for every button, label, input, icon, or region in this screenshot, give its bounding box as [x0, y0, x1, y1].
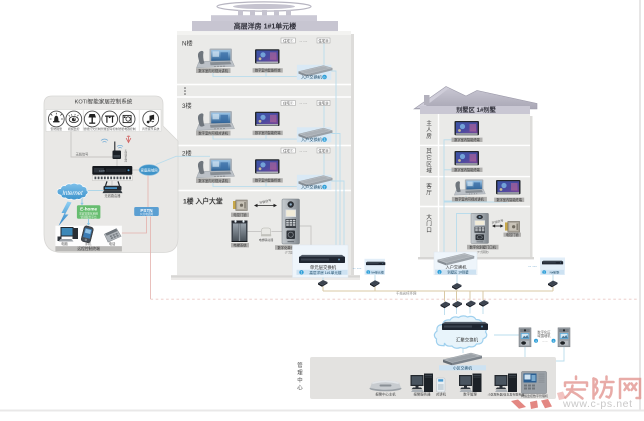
svg-text:-- ---: -- --- [299, 100, 307, 105]
svg-text:Internet: Internet [62, 191, 83, 197]
svg-text:管: 管 [297, 361, 303, 369]
svg-text:E-home: E-home [80, 207, 97, 212]
svg-text:数字室内智能终端: 数字室内智能终端 [454, 167, 480, 172]
svg-text:数字室内智能终端: 数字室内智能终端 [496, 197, 522, 202]
svg-text:高层洋房 1#1单元楼: 高层洋房 1#1单元楼 [309, 270, 342, 275]
svg-text:电脑: 电脑 [61, 241, 68, 246]
svg-text:大: 大 [426, 213, 432, 221]
svg-text:2: 2 [324, 186, 326, 190]
svg-text:智能灯光控制: 智能灯光控制 [84, 126, 101, 131]
svg-text:千兆光纤环网: 千兆光纤环网 [396, 291, 417, 296]
svg-text:背景音乐系统: 背景音乐系统 [142, 126, 159, 131]
svg-text:数字化别墅门口机: 数字化别墅门口机 [470, 244, 497, 249]
svg-text:n: n [324, 76, 326, 80]
svg-text:小区交换机: 小区交换机 [453, 365, 472, 370]
svg-text:小区服务器/信息发布服务器: 小区服务器/信息发布服务器 [488, 392, 525, 397]
svg-text:家庭智能化系统: 家庭智能化系统 [79, 211, 98, 215]
svg-text:N#别墅: N#别墅 [550, 270, 560, 275]
svg-text:远程控制终端: 远程控制终端 [77, 246, 100, 251]
svg-text:人: 人 [426, 127, 432, 134]
svg-text:智能电器控制: 智能电器控制 [118, 126, 135, 131]
svg-text:无线路由器: 无线路由器 [105, 193, 122, 198]
svg-text:入户交换机: 入户交换机 [301, 136, 323, 143]
svg-text:门: 门 [426, 220, 432, 228]
svg-text:别墅区 1#别墅: 别墅区 1#别墅 [447, 270, 469, 275]
svg-text:理: 理 [297, 370, 303, 377]
svg-text:无线信号: 无线信号 [76, 151, 89, 156]
svg-text:-- ---: -- --- [353, 266, 362, 271]
svg-text:电话: 电话 [109, 241, 116, 246]
svg-text:住宅①: 住宅① [283, 148, 294, 153]
svg-text:数字室内可视对讲机: 数字室内可视对讲机 [455, 197, 484, 202]
svg-text:1楼 入户大堂: 1楼 入户大堂 [183, 197, 223, 206]
svg-text:网络监控数字管理机: 网络监控数字管理机 [521, 393, 548, 398]
svg-text:电梯系统: 电梯系统 [233, 242, 247, 247]
svg-text:家庭局域网: 家庭局域网 [141, 168, 159, 173]
svg-text:别墅区 1#别墅: 别墅区 1#别墅 [455, 106, 496, 114]
svg-text:器: 器 [125, 159, 128, 163]
svg-text:数字室内智能终端: 数字室内智能终端 [454, 137, 480, 142]
svg-text:视频监控: 视频监控 [68, 126, 80, 131]
svg-text:客: 客 [426, 182, 432, 190]
svg-text:入户交换机: 入户交换机 [301, 74, 323, 81]
svg-text:数字室内可视对讲机: 数字室内可视对讲机 [198, 130, 228, 135]
svg-text:汇聚交换机: 汇聚交换机 [456, 337, 479, 344]
svg-text:电控门锁: 电控门锁 [506, 232, 520, 237]
svg-text:它: 它 [426, 154, 432, 162]
svg-text:PSTN: PSTN [140, 208, 153, 213]
svg-text:(7寸屏款): (7寸屏款) [477, 250, 489, 254]
svg-text:域: 域 [426, 167, 432, 175]
svg-text:数字室内智能终端: 数字室内智能终端 [255, 68, 281, 73]
svg-text:住宅⑳: 住宅⑳ [318, 148, 329, 153]
svg-text:数字室内智能终端: 数字室内智能终端 [255, 130, 281, 135]
svg-text:域围墙机: 域围墙机 [537, 333, 551, 338]
svg-text:数字室内可视对讲机: 数字室内可视对讲机 [198, 68, 228, 73]
svg-text:报警服务器: 报警服务器 [414, 392, 432, 397]
svg-text:厅: 厅 [426, 190, 432, 197]
svg-text:3: 3 [324, 138, 326, 142]
svg-text:管理服务平台: 管理服务平台 [81, 215, 97, 219]
svg-text:KOTI: KOTI [99, 169, 105, 173]
svg-text:高层洋房 1#1单元楼: 高层洋房 1#1单元楼 [234, 22, 297, 31]
svg-text:电梯联动器: 电梯联动器 [259, 237, 274, 242]
svg-text:数字管理: 数字管理 [463, 392, 477, 397]
svg-text:心: 心 [297, 385, 303, 392]
svg-text:数字室内可视对讲机: 数字室内可视对讲机 [198, 178, 228, 183]
svg-text:住宅⑳: 住宅⑳ [318, 38, 329, 43]
svg-text:智能窗帘控制: 智能窗帘控制 [101, 126, 118, 131]
svg-text:住宅①: 住宅① [283, 100, 294, 105]
svg-text:主: 主 [426, 119, 432, 127]
svg-text:-- ---: -- --- [299, 38, 307, 43]
svg-text:3楼: 3楼 [182, 102, 192, 110]
svg-text:-- ---: -- --- [528, 264, 537, 269]
svg-text:入户交换机: 入户交换机 [301, 184, 323, 191]
svg-text:-- --: -- -- [542, 339, 547, 343]
svg-text:-- ---: -- --- [299, 148, 307, 153]
svg-text:报警中心主机: 报警中心主机 [375, 392, 396, 397]
svg-text:房: 房 [426, 132, 432, 140]
svg-text:对讲机: 对讲机 [436, 392, 447, 397]
svg-text:数字室内智能终端: 数字室内智能终端 [255, 178, 281, 183]
svg-text:N楼: N楼 [182, 40, 193, 48]
svg-text:口: 口 [426, 227, 432, 234]
svg-text:住宅①: 住宅① [283, 38, 294, 43]
svg-text:手机: 手机 [85, 241, 92, 246]
svg-text:电控门锁: 电控门锁 [233, 212, 247, 217]
svg-text:安防报警: 安防报警 [51, 126, 63, 131]
svg-text:中: 中 [297, 376, 302, 384]
svg-text:KOTI智能家居控制系统: KOTI智能家居控制系统 [75, 98, 133, 106]
svg-text:区: 区 [426, 161, 432, 168]
svg-text:1: 1 [301, 271, 303, 275]
svg-text:公共电话网: 公共电话网 [140, 212, 153, 216]
svg-text:住宅⑳: 住宅⑳ [318, 100, 329, 105]
svg-text:www.c-ps.net: www.c-ps.net [562, 398, 633, 410]
svg-text:其: 其 [426, 147, 432, 155]
svg-text:N#单元楼: N#单元楼 [371, 270, 384, 275]
